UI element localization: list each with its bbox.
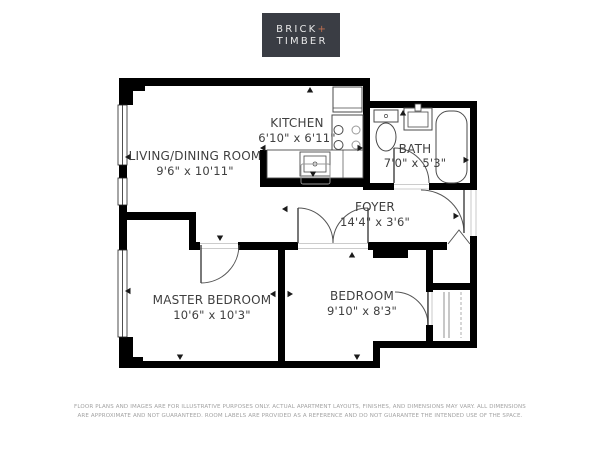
room-label-bedroom: BEDROOM <box>330 289 394 303</box>
door-arc-french-left <box>298 208 333 243</box>
toilet-icon <box>374 110 398 151</box>
room-dims-foyer: 14'4" x 3'6" <box>340 215 410 229</box>
door-arc-entry <box>421 190 464 233</box>
disclaimer-text: FLOOR PLANS AND IMAGES ARE FOR ILLUSTRAT… <box>0 403 600 420</box>
room-dims-living-dining: 9'6" x 10'11" <box>156 164 234 178</box>
bath-sink-icon <box>404 104 432 130</box>
fridge-icon <box>333 87 362 112</box>
room-label-bath: BATH <box>399 142 432 156</box>
floorplan-drawing: LIVING/DINING ROOM 9'6" x 10'11" KITCHEN… <box>0 0 600 450</box>
door-arc-bedroom-closet <box>395 292 428 325</box>
room-dims-bath: 7'0" x 5'3" <box>384 156 447 170</box>
bifold-door-icon <box>448 230 470 244</box>
bathtub-icon <box>436 111 467 183</box>
floorplan-page: BRICK+ TIMBER <box>0 0 600 450</box>
room-label-living-dining: LIVING/DINING ROOM <box>129 149 262 163</box>
room-dims-master-bedroom: 10'6" x 10'3" <box>173 308 251 322</box>
closet-shelving <box>444 292 461 338</box>
room-label-kitchen: KITCHEN <box>270 116 323 130</box>
disclaimer-line-2: ARE APPROXIMATE AND NOT GUARANTEED. ROOM… <box>0 412 600 421</box>
window-icon <box>118 178 127 205</box>
room-dims-bedroom: 9'10" x 8'3" <box>327 304 397 318</box>
room-label-master-bedroom: MASTER BEDROOM <box>153 293 272 307</box>
window-icon <box>118 105 127 165</box>
room-label-foyer: FOYER <box>355 200 395 214</box>
disclaimer-line-1: FLOOR PLANS AND IMAGES ARE FOR ILLUSTRAT… <box>0 403 600 412</box>
room-dims-kitchen: 6'10" x 6'11" <box>258 131 336 145</box>
door-arc-master-bedroom <box>201 245 239 283</box>
window-icon <box>118 250 127 337</box>
